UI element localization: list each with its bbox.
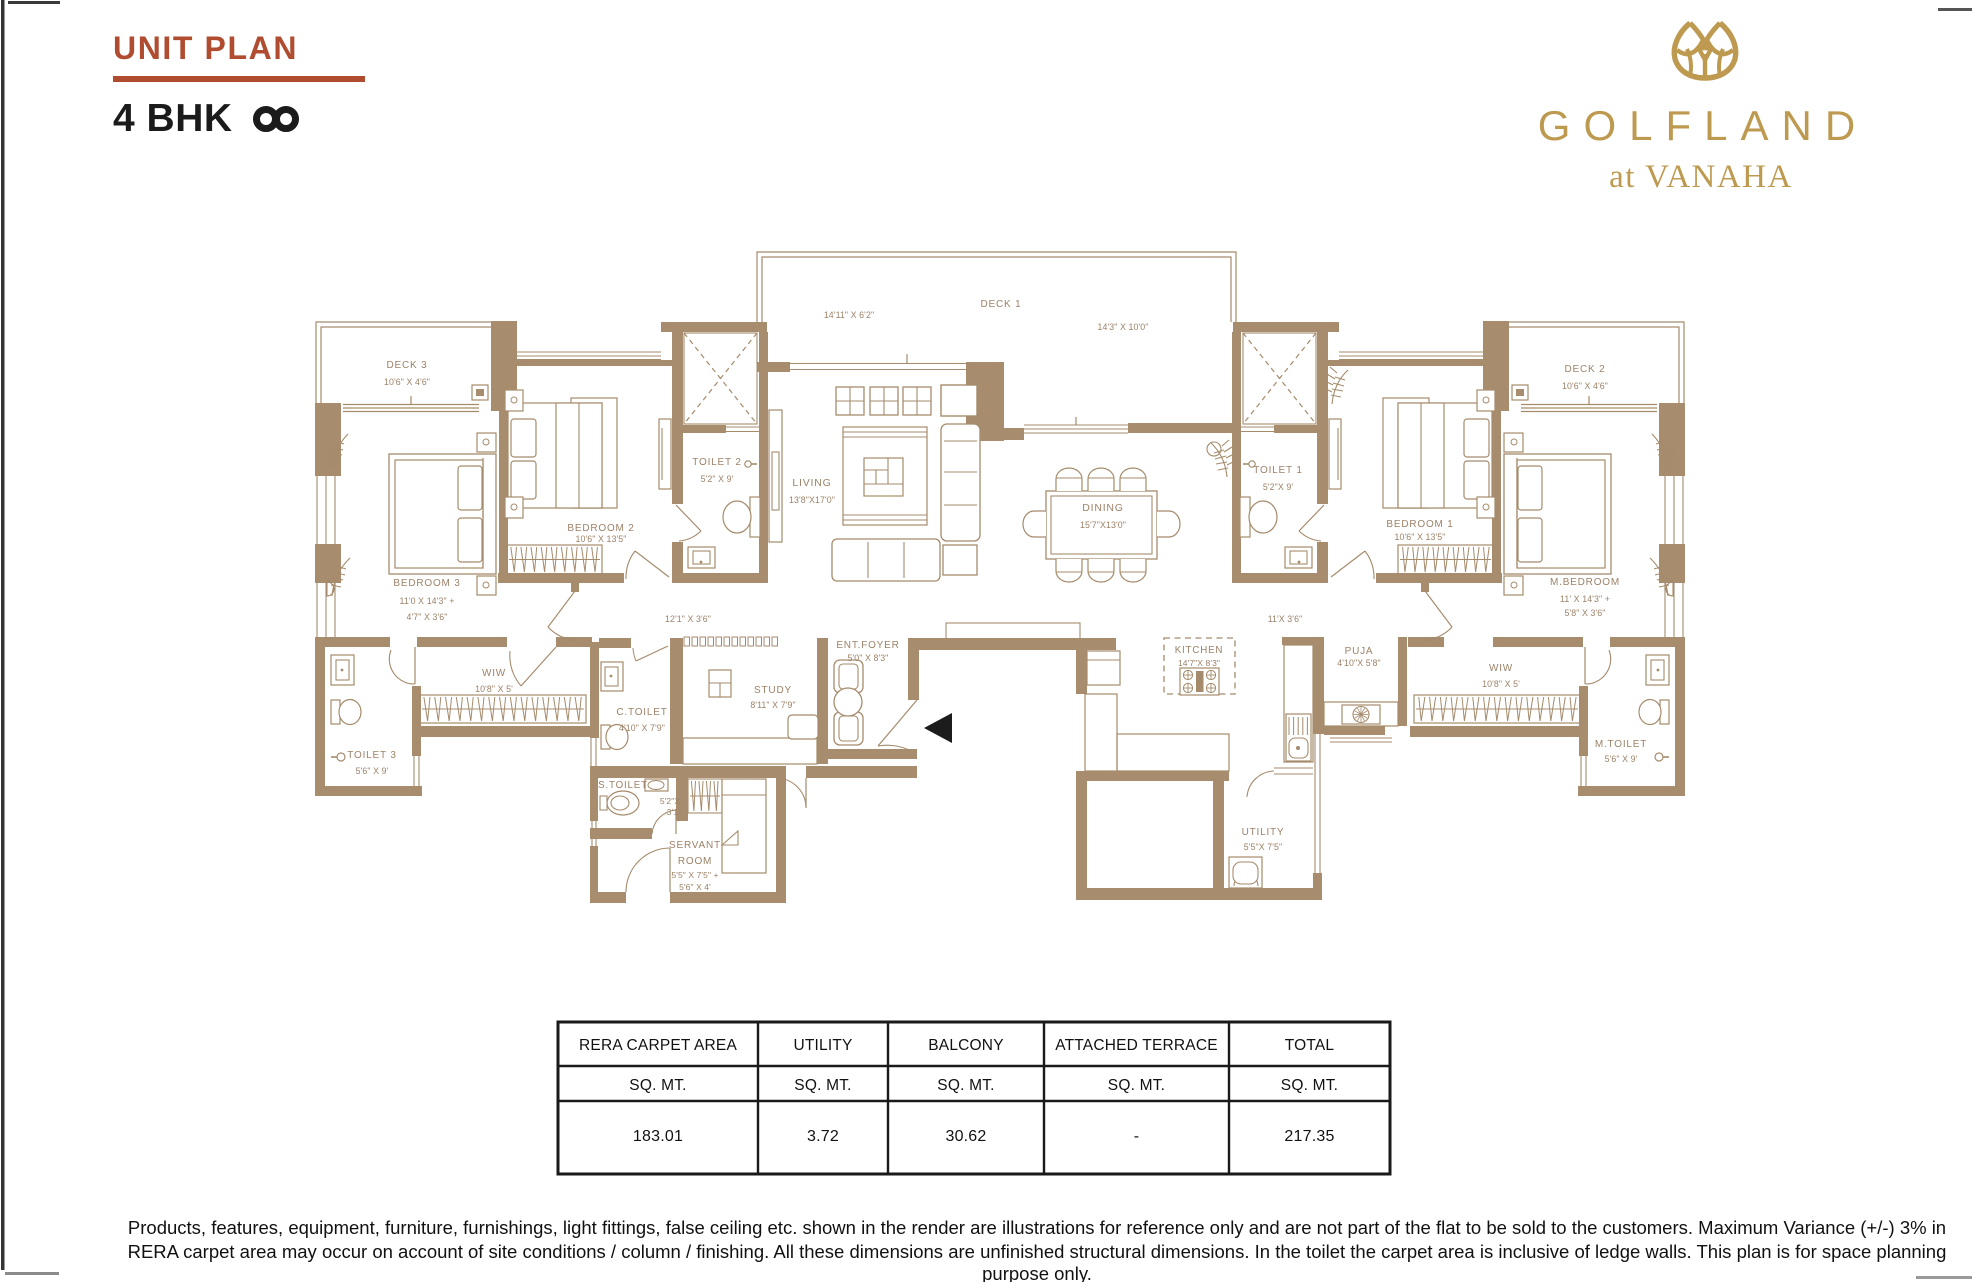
svg-text:5'8" X 3'6": 5'8" X 3'6" (1564, 608, 1605, 618)
svg-text:TOILET 2: TOILET 2 (692, 457, 741, 468)
svg-text:5'6" X 9': 5'6" X 9' (1605, 754, 1638, 764)
svg-text:UNIT PLAN: UNIT PLAN (113, 30, 298, 66)
svg-text:S.TOILET: S.TOILET (598, 780, 648, 791)
svg-text:RERA carpet area may occur on: RERA carpet area may occur on account of… (128, 1241, 1947, 1262)
svg-text:11'X 3'6": 11'X 3'6" (1268, 614, 1303, 624)
svg-text:BEDROOM 2: BEDROOM 2 (567, 523, 634, 534)
svg-text:KITCHEN: KITCHEN (1175, 645, 1224, 656)
svg-text:SQ. MT.: SQ. MT. (794, 1077, 851, 1094)
svg-text:5'2"X 9': 5'2"X 9' (1263, 482, 1293, 492)
svg-text:14'11" X 6'2": 14'11" X 6'2" (824, 310, 874, 320)
svg-text:4'10"X 5'8": 4'10"X 5'8" (1337, 658, 1380, 668)
svg-text:RERA CARPET AREA: RERA CARPET AREA (579, 1037, 737, 1054)
svg-text:SQ. MT.: SQ. MT. (629, 1077, 686, 1094)
svg-text:BALCONY: BALCONY (928, 1037, 1003, 1054)
svg-text:5'5" X 7'5" +: 5'5" X 7'5" + (671, 870, 718, 880)
svg-text:BEDROOM 3: BEDROOM 3 (393, 578, 460, 589)
svg-text:UTILITY: UTILITY (1242, 827, 1285, 838)
svg-text:217.35: 217.35 (1284, 1128, 1334, 1145)
svg-text:5'6" X 4': 5'6" X 4' (679, 882, 711, 892)
svg-text:PUJA: PUJA (1345, 646, 1374, 657)
svg-text:ATTACHED TERRACE: ATTACHED TERRACE (1055, 1037, 1218, 1054)
svg-text:5'0" X 8'3": 5'0" X 8'3" (847, 653, 888, 663)
svg-text:UTILITY: UTILITY (793, 1037, 852, 1054)
svg-text:5'6" X 9': 5'6" X 9' (356, 766, 389, 776)
svg-text:11' X 14'3" +: 11' X 14'3" + (1560, 594, 1610, 604)
svg-text:ENT.FOYER: ENT.FOYER (836, 640, 899, 651)
svg-text:5'2" X 9': 5'2" X 9' (701, 474, 734, 484)
svg-text:DECK 3: DECK 3 (387, 360, 428, 371)
svg-text:LIVING: LIVING (792, 477, 831, 489)
svg-text:DECK 1: DECK 1 (981, 299, 1022, 310)
svg-text:5'5"X 7'5": 5'5"X 7'5" (1244, 842, 1283, 852)
svg-text:13'8"X17'0": 13'8"X17'0" (789, 495, 835, 505)
svg-text:STUDY: STUDY (754, 685, 792, 696)
svg-text:SQ. MT.: SQ. MT. (937, 1077, 994, 1094)
svg-text:14'3" X 10'0": 14'3" X 10'0" (1097, 322, 1148, 332)
svg-text:DECK 2: DECK 2 (1565, 364, 1606, 375)
svg-text:at VANAHA: at VANAHA (1609, 159, 1793, 195)
svg-text:SERVANT: SERVANT (669, 840, 721, 851)
svg-text:3'1": 3'1" (667, 807, 682, 817)
svg-text:4 BHK: 4 BHK (113, 97, 233, 140)
svg-text:10'6" X 13'5": 10'6" X 13'5" (1394, 532, 1445, 542)
svg-text:GOLFLAND: GOLFLAND (1538, 102, 1868, 149)
svg-text:C.TOILET: C.TOILET (616, 707, 667, 718)
svg-text:M.TOILET: M.TOILET (1595, 739, 1647, 750)
svg-text:purpose only.: purpose only. (982, 1263, 1092, 1282)
svg-text:11'0 X 14'3" +: 11'0 X 14'3" + (400, 596, 455, 606)
svg-text:WIW: WIW (1489, 663, 1513, 674)
svg-text:15'7"X13'0": 15'7"X13'0" (1080, 520, 1126, 530)
svg-text:WIW: WIW (482, 668, 506, 679)
svg-text:10'8" X 5': 10'8" X 5' (475, 684, 513, 694)
svg-text:12'1" X 3'6": 12'1" X 3'6" (665, 614, 711, 624)
svg-text:BEDROOM 1: BEDROOM 1 (1386, 519, 1453, 530)
svg-text:14'7"X 8'3": 14'7"X 8'3" (1178, 658, 1220, 668)
svg-text:30.62: 30.62 (945, 1128, 986, 1145)
svg-text:183.01: 183.01 (633, 1128, 683, 1145)
svg-text:DINING: DINING (1082, 502, 1124, 514)
svg-text:SQ. MT.: SQ. MT. (1281, 1077, 1338, 1094)
svg-text:-: - (1134, 1128, 1140, 1145)
svg-text:10'8" X 5': 10'8" X 5' (1482, 679, 1520, 689)
svg-text:Products, features, equipment,: Products, features, equipment, furniture… (128, 1217, 1946, 1238)
svg-text:8'11" X 7'9": 8'11" X 7'9" (750, 700, 795, 710)
svg-text:10'6" X 13'5": 10'6" X 13'5" (575, 534, 626, 544)
svg-text:4'10" X 7'9": 4'10" X 7'9" (619, 723, 665, 733)
svg-text:TOILET 3: TOILET 3 (347, 750, 396, 761)
svg-text:3.72: 3.72 (807, 1128, 839, 1145)
svg-text:4'7" X 3'6": 4'7" X 3'6" (406, 612, 447, 622)
svg-text:SQ. MT.: SQ. MT. (1108, 1077, 1165, 1094)
svg-text:M.BEDROOM: M.BEDROOM (1550, 577, 1620, 588)
svg-text:ROOM: ROOM (678, 856, 712, 867)
svg-text:10'6" X 4'6": 10'6" X 4'6" (384, 377, 430, 387)
svg-text:5'2"X: 5'2"X (660, 796, 680, 806)
svg-text:TOTAL: TOTAL (1285, 1037, 1335, 1054)
svg-text:TOILET 1: TOILET 1 (1253, 465, 1302, 476)
svg-text:10'6" X 4'6": 10'6" X 4'6" (1562, 381, 1608, 391)
